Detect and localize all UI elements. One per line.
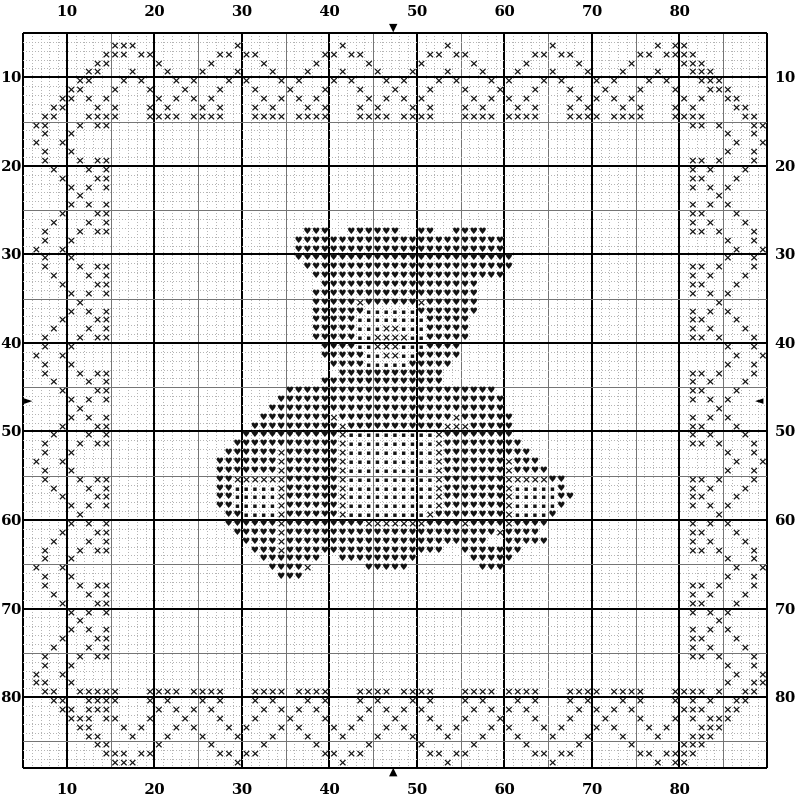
gridline-horizontal bbox=[23, 175, 767, 176]
stitch-cross: × bbox=[268, 697, 277, 706]
stitch-cross: × bbox=[321, 104, 330, 113]
stitch-cross: × bbox=[688, 635, 697, 644]
stitch-cross: × bbox=[67, 502, 76, 511]
stitch-heart: ♥ bbox=[478, 263, 487, 272]
stitch-dot: ▪ bbox=[364, 316, 373, 325]
stitch-cross: × bbox=[487, 113, 496, 122]
gridline-horizontal bbox=[23, 68, 767, 69]
stitch-heart: ♥ bbox=[443, 520, 452, 529]
stitch-heart: ♥ bbox=[294, 485, 303, 494]
stitch-heart: ♥ bbox=[496, 564, 505, 573]
stitch-cross: × bbox=[749, 148, 758, 157]
stitch-cross: × bbox=[741, 697, 750, 706]
stitch-heart: ♥ bbox=[504, 449, 513, 458]
stitch-heart: ♥ bbox=[513, 538, 522, 547]
stitch-heart: ♥ bbox=[434, 387, 443, 396]
stitch-heart: ♥ bbox=[303, 254, 312, 263]
stitch-cross: × bbox=[723, 467, 732, 476]
stitch-dot: ▪ bbox=[364, 440, 373, 449]
stitch-cross: × bbox=[128, 42, 137, 51]
stitch-heart: ♥ bbox=[391, 246, 400, 255]
stitch-cross: × bbox=[688, 210, 697, 219]
stitch-cross: × bbox=[461, 715, 470, 724]
gridline-horizontal bbox=[23, 60, 767, 61]
stitch-cross: × bbox=[741, 166, 750, 175]
gridline-horizontal bbox=[23, 325, 767, 326]
stitch-heart: ♥ bbox=[478, 493, 487, 502]
stitch-cross: × bbox=[408, 697, 417, 706]
stitch-cross: × bbox=[41, 237, 50, 246]
stitch-heart: ♥ bbox=[434, 352, 443, 361]
stitch-heart: ♥ bbox=[478, 440, 487, 449]
stitch-cross: × bbox=[242, 476, 251, 485]
axis-tick-label-bottom: 50 bbox=[407, 780, 427, 798]
stitch-cross: × bbox=[102, 653, 111, 662]
stitch-cross: × bbox=[662, 51, 671, 60]
stitch-heart: ♥ bbox=[286, 467, 295, 476]
stitch-heart: ♥ bbox=[417, 414, 426, 423]
stitch-heart: ♥ bbox=[373, 228, 382, 237]
stitch-heart: ♥ bbox=[434, 538, 443, 547]
stitch-cross: × bbox=[434, 77, 443, 86]
stitch-heart: ♥ bbox=[329, 299, 338, 308]
gridline-horizontal bbox=[23, 253, 767, 255]
stitch-heart: ♥ bbox=[469, 272, 478, 281]
stitch-heart: ♥ bbox=[347, 254, 356, 263]
stitch-heart: ♥ bbox=[329, 387, 338, 396]
stitch-cross: × bbox=[189, 724, 198, 733]
stitch-cross: × bbox=[242, 750, 251, 759]
stitch-cross: × bbox=[671, 759, 680, 768]
stitch-heart: ♥ bbox=[539, 538, 548, 547]
stitch-dot: ▪ bbox=[242, 485, 251, 494]
stitch-heart: ♥ bbox=[259, 529, 268, 538]
stitch-cross: × bbox=[163, 697, 172, 706]
stitch-heart: ♥ bbox=[303, 405, 312, 414]
stitch-cross: × bbox=[434, 724, 443, 733]
stitch-heart: ♥ bbox=[216, 476, 225, 485]
stitch-heart: ♥ bbox=[426, 423, 435, 432]
stitch-heart: ♥ bbox=[329, 396, 338, 405]
stitch-heart: ♥ bbox=[408, 405, 417, 414]
stitch-heart: ♥ bbox=[478, 511, 487, 520]
stitch-dot: ▪ bbox=[399, 502, 408, 511]
stitch-dot: ▪ bbox=[531, 511, 540, 520]
stitch-heart: ♥ bbox=[382, 370, 391, 379]
stitch-cross: × bbox=[688, 697, 697, 706]
stitch-dot: ▪ bbox=[408, 431, 417, 440]
gridline-vertical bbox=[137, 33, 138, 768]
stitch-heart: ♥ bbox=[408, 423, 417, 432]
stitch-cross: × bbox=[93, 157, 102, 166]
stitch-dot: ▪ bbox=[373, 485, 382, 494]
stitch-dot: ▪ bbox=[391, 440, 400, 449]
stitch-cross: × bbox=[732, 635, 741, 644]
stitch-heart: ♥ bbox=[356, 272, 365, 281]
stitch-heart: ♥ bbox=[321, 352, 330, 361]
stitch-heart: ♥ bbox=[469, 237, 478, 246]
stitch-heart: ♥ bbox=[478, 449, 487, 458]
stitch-cross: × bbox=[338, 759, 347, 768]
stitch-heart: ♥ bbox=[513, 440, 522, 449]
stitch-heart: ♥ bbox=[487, 502, 496, 511]
stitch-dot: ▪ bbox=[373, 431, 382, 440]
stitch-heart: ♥ bbox=[487, 237, 496, 246]
gridline-horizontal bbox=[23, 219, 767, 220]
stitch-cross: × bbox=[496, 715, 505, 724]
stitch-cross: × bbox=[93, 387, 102, 396]
stitch-cross: × bbox=[146, 715, 155, 724]
stitch-cross: × bbox=[347, 51, 356, 60]
stitch-heart: ♥ bbox=[443, 485, 452, 494]
stitch-heart: ♥ bbox=[268, 547, 277, 556]
stitch-heart: ♥ bbox=[303, 511, 312, 520]
stitch-heart: ♥ bbox=[356, 555, 365, 564]
stitch-cross: × bbox=[697, 733, 706, 742]
stitch-cross: × bbox=[723, 361, 732, 370]
gridline-horizontal bbox=[23, 688, 767, 689]
stitch-cross: × bbox=[102, 113, 111, 122]
stitch-heart: ♥ bbox=[443, 343, 452, 352]
stitch-cross: × bbox=[111, 86, 120, 95]
stitch-cross: × bbox=[741, 378, 750, 387]
stitch-cross: × bbox=[93, 688, 102, 697]
stitch-heart: ♥ bbox=[277, 555, 286, 564]
stitch-cross: × bbox=[452, 414, 461, 423]
stitch-dot: ▪ bbox=[364, 485, 373, 494]
stitch-heart: ♥ bbox=[373, 396, 382, 405]
stitch-cross: × bbox=[706, 431, 715, 440]
stitch-heart: ♥ bbox=[364, 423, 373, 432]
stitch-cross: × bbox=[732, 697, 741, 706]
stitch-heart: ♥ bbox=[382, 290, 391, 299]
stitch-heart: ♥ bbox=[364, 370, 373, 379]
stitch-heart: ♥ bbox=[277, 431, 286, 440]
stitch-heart: ♥ bbox=[321, 493, 330, 502]
stitch-cross: × bbox=[67, 467, 76, 476]
stitch-heart: ♥ bbox=[487, 263, 496, 272]
stitch-cross: × bbox=[679, 51, 688, 60]
stitch-cross: × bbox=[697, 263, 706, 272]
stitch-heart: ♥ bbox=[504, 423, 513, 432]
stitch-cross: × bbox=[714, 157, 723, 166]
stitch-heart: ♥ bbox=[478, 502, 487, 511]
stitch-cross: × bbox=[242, 724, 251, 733]
stitch-cross: × bbox=[478, 733, 487, 742]
stitch-heart: ♥ bbox=[242, 529, 251, 538]
stitch-heart: ♥ bbox=[373, 414, 382, 423]
stitch-cross: × bbox=[714, 547, 723, 556]
stitch-cross: × bbox=[277, 688, 286, 697]
stitch-heart: ♥ bbox=[496, 493, 505, 502]
stitch-cross: × bbox=[408, 68, 417, 77]
gridline-vertical bbox=[662, 33, 663, 768]
stitch-cross: × bbox=[741, 325, 750, 334]
stitch-heart: ♥ bbox=[539, 467, 548, 476]
stitch-heart: ♥ bbox=[294, 493, 303, 502]
stitch-cross: × bbox=[102, 538, 111, 547]
stitch-cross: × bbox=[391, 352, 400, 361]
stitch-heart: ♥ bbox=[294, 467, 303, 476]
stitch-cross: × bbox=[76, 547, 85, 556]
stitch-heart: ♥ bbox=[303, 520, 312, 529]
stitch-cross: × bbox=[469, 706, 478, 715]
stitch-heart: ♥ bbox=[399, 263, 408, 272]
gridline-horizontal bbox=[23, 724, 767, 725]
stitch-dot: ▪ bbox=[391, 502, 400, 511]
stitch-dot: ▪ bbox=[347, 476, 356, 485]
stitch-cross: × bbox=[732, 564, 741, 573]
stitch-cross: × bbox=[382, 77, 391, 86]
stitch-cross: × bbox=[329, 77, 338, 86]
stitch-heart: ♥ bbox=[364, 564, 373, 573]
stitch-heart: ♥ bbox=[259, 414, 268, 423]
stitch-cross: × bbox=[373, 113, 382, 122]
stitch-dot: ▪ bbox=[364, 493, 373, 502]
stitch-heart: ♥ bbox=[452, 485, 461, 494]
stitch-cross: × bbox=[119, 51, 128, 60]
stitch-heart: ♥ bbox=[259, 467, 268, 476]
stitch-heart: ♥ bbox=[373, 387, 382, 396]
stitch-dot: ▪ bbox=[408, 449, 417, 458]
stitch-heart: ♥ bbox=[312, 263, 321, 272]
stitch-cross: × bbox=[749, 334, 758, 343]
stitch-cross: × bbox=[417, 60, 426, 69]
stitch-heart: ♥ bbox=[364, 414, 373, 423]
stitch-cross: × bbox=[697, 741, 706, 750]
stitch-cross: × bbox=[277, 467, 286, 476]
stitch-dot: ▪ bbox=[417, 467, 426, 476]
stitch-heart: ♥ bbox=[443, 334, 452, 343]
stitch-heart: ♥ bbox=[478, 529, 487, 538]
stitch-heart: ♥ bbox=[469, 246, 478, 255]
stitch-dot: ▪ bbox=[391, 485, 400, 494]
stitch-cross: × bbox=[58, 104, 67, 113]
stitch-cross: × bbox=[154, 706, 163, 715]
stitch-cross: × bbox=[128, 733, 137, 742]
stitch-cross: × bbox=[356, 113, 365, 122]
stitch-dot: ▪ bbox=[408, 476, 417, 485]
stitch-cross: × bbox=[671, 42, 680, 51]
stitch-heart: ♥ bbox=[417, 361, 426, 370]
stitch-cross: × bbox=[504, 485, 513, 494]
stitch-cross: × bbox=[688, 316, 697, 325]
stitch-heart: ♥ bbox=[382, 405, 391, 414]
stitch-cross: × bbox=[49, 688, 58, 697]
stitch-heart: ♥ bbox=[452, 493, 461, 502]
stitch-cross: × bbox=[636, 750, 645, 759]
stitch-heart: ♥ bbox=[469, 449, 478, 458]
stitch-dot: ▪ bbox=[233, 493, 242, 502]
stitch-cross: × bbox=[758, 352, 767, 361]
stitch-heart: ♥ bbox=[391, 423, 400, 432]
stitch-cross: × bbox=[679, 113, 688, 122]
stitch-heart: ♥ bbox=[417, 370, 426, 379]
stitch-cross: × bbox=[609, 724, 618, 733]
stitch-cross: × bbox=[382, 325, 391, 334]
stitch-heart: ♥ bbox=[312, 405, 321, 414]
stitch-heart: ♥ bbox=[321, 502, 330, 511]
stitch-heart: ♥ bbox=[338, 254, 347, 263]
stitch-heart: ♥ bbox=[382, 263, 391, 272]
stitch-dot: ▪ bbox=[364, 308, 373, 317]
stitch-cross: × bbox=[189, 706, 198, 715]
stitch-cross: × bbox=[504, 502, 513, 511]
stitch-dot: ▪ bbox=[382, 308, 391, 317]
stitch-cross: × bbox=[347, 724, 356, 733]
stitch-dot: ▪ bbox=[391, 431, 400, 440]
stitch-heart: ♥ bbox=[321, 440, 330, 449]
stitch-heart: ♥ bbox=[478, 396, 487, 405]
stitch-cross: × bbox=[732, 281, 741, 290]
stitch-heart: ♥ bbox=[557, 485, 566, 494]
stitch-cross: × bbox=[688, 219, 697, 228]
gridline-vertical bbox=[618, 33, 619, 768]
stitch-heart: ♥ bbox=[338, 316, 347, 325]
stitch-heart: ♥ bbox=[478, 387, 487, 396]
stitch-cross: × bbox=[504, 113, 513, 122]
gridline-vertical bbox=[347, 33, 348, 768]
stitch-heart: ♥ bbox=[434, 511, 443, 520]
stitch-heart: ♥ bbox=[496, 440, 505, 449]
gridline-horizontal bbox=[23, 662, 767, 663]
stitch-heart: ♥ bbox=[434, 334, 443, 343]
stitch-cross: × bbox=[67, 679, 76, 688]
stitch-heart: ♥ bbox=[268, 449, 277, 458]
stitch-heart: ♥ bbox=[216, 467, 225, 476]
stitch-cross: × bbox=[688, 476, 697, 485]
stitch-dot: ▪ bbox=[408, 502, 417, 511]
stitch-cross: × bbox=[732, 95, 741, 104]
stitch-heart: ♥ bbox=[399, 299, 408, 308]
stitch-heart: ♥ bbox=[347, 290, 356, 299]
stitch-dot: ▪ bbox=[356, 440, 365, 449]
stitch-cross: × bbox=[49, 166, 58, 175]
gridline-horizontal bbox=[23, 378, 767, 379]
stitch-heart: ♥ bbox=[469, 423, 478, 432]
stitch-dot: ▪ bbox=[417, 511, 426, 520]
stitch-heart: ♥ bbox=[312, 555, 321, 564]
stitch-cross: × bbox=[373, 688, 382, 697]
stitch-cross: × bbox=[434, 485, 443, 494]
stitch-cross: × bbox=[688, 706, 697, 715]
stitch-heart: ♥ bbox=[461, 396, 470, 405]
stitch-heart: ♥ bbox=[469, 431, 478, 440]
stitch-heart: ♥ bbox=[461, 440, 470, 449]
stitch-heart: ♥ bbox=[426, 308, 435, 317]
gridline-horizontal bbox=[23, 485, 767, 486]
stitch-cross: × bbox=[146, 697, 155, 706]
stitch-heart: ♥ bbox=[268, 467, 277, 476]
stitch-cross: × bbox=[723, 679, 732, 688]
stitch-cross: × bbox=[653, 759, 662, 768]
stitch-cross: × bbox=[732, 139, 741, 148]
stitch-cross: × bbox=[749, 679, 758, 688]
stitch-cross: × bbox=[154, 688, 163, 697]
stitch-dot: ▪ bbox=[347, 493, 356, 502]
stitch-heart: ♥ bbox=[531, 458, 540, 467]
stitch-cross: × bbox=[224, 51, 233, 60]
stitch-heart: ♥ bbox=[426, 529, 435, 538]
stitch-cross: × bbox=[688, 741, 697, 750]
stitch-heart: ♥ bbox=[461, 325, 470, 334]
gridline-horizontal bbox=[23, 635, 767, 636]
gridline-vertical bbox=[294, 33, 295, 768]
stitch-cross: × bbox=[487, 688, 496, 697]
stitch-heart: ♥ bbox=[391, 272, 400, 281]
stitch-heart: ♥ bbox=[399, 564, 408, 573]
stitch-heart: ♥ bbox=[408, 547, 417, 556]
stitch-heart: ♥ bbox=[356, 246, 365, 255]
stitch-cross: × bbox=[338, 449, 347, 458]
stitch-cross: × bbox=[706, 290, 715, 299]
stitch-heart: ♥ bbox=[417, 308, 426, 317]
stitch-cross: × bbox=[417, 299, 426, 308]
gridline-vertical bbox=[399, 33, 400, 768]
stitch-heart: ♥ bbox=[303, 263, 312, 272]
stitch-cross: × bbox=[688, 688, 697, 697]
axis-tick-label-top: 30 bbox=[232, 2, 252, 20]
stitch-dot: ▪ bbox=[408, 325, 417, 334]
stitch-heart: ♥ bbox=[312, 272, 321, 281]
stitch-cross: × bbox=[41, 334, 50, 343]
stitch-heart: ♥ bbox=[312, 502, 321, 511]
stitch-heart: ♥ bbox=[408, 290, 417, 299]
stitch-cross: × bbox=[714, 724, 723, 733]
stitch-dot: ▪ bbox=[382, 316, 391, 325]
stitch-heart: ♥ bbox=[329, 290, 338, 299]
stitch-heart: ♥ bbox=[496, 502, 505, 511]
stitch-cross: × bbox=[741, 485, 750, 494]
stitch-heart: ♥ bbox=[443, 511, 452, 520]
stitch-dot: ▪ bbox=[408, 485, 417, 494]
stitch-cross: × bbox=[671, 688, 680, 697]
stitch-dot: ▪ bbox=[382, 361, 391, 370]
stitch-dot: ▪ bbox=[347, 449, 356, 458]
stitch-cross: × bbox=[146, 104, 155, 113]
stitch-heart: ♥ bbox=[452, 343, 461, 352]
stitch-cross: × bbox=[58, 387, 67, 396]
stitch-cross: × bbox=[146, 688, 155, 697]
stitch-heart: ♥ bbox=[312, 520, 321, 529]
stitch-cross: × bbox=[697, 316, 706, 325]
stitch-heart: ♥ bbox=[312, 299, 321, 308]
stitch-heart: ♥ bbox=[504, 414, 513, 423]
stitch-cross: × bbox=[426, 51, 435, 60]
stitch-heart: ♥ bbox=[312, 237, 321, 246]
gridline-vertical bbox=[478, 33, 479, 768]
stitch-cross: × bbox=[49, 272, 58, 281]
stitch-cross: × bbox=[749, 113, 758, 122]
stitch-heart: ♥ bbox=[539, 520, 548, 529]
stitch-dot: ▪ bbox=[382, 485, 391, 494]
gridline-horizontal bbox=[23, 696, 767, 698]
stitch-heart: ♥ bbox=[277, 564, 286, 573]
stitch-cross: × bbox=[58, 529, 67, 538]
stitch-cross: × bbox=[697, 529, 706, 538]
stitch-cross: × bbox=[749, 370, 758, 379]
gridline-horizontal bbox=[23, 113, 767, 114]
stitch-cross: × bbox=[609, 113, 618, 122]
stitch-heart: ♥ bbox=[408, 254, 417, 263]
stitch-heart: ♥ bbox=[452, 458, 461, 467]
stitch-heart: ♥ bbox=[321, 396, 330, 405]
gridline-vertical bbox=[653, 33, 654, 768]
stitch-cross: × bbox=[84, 414, 93, 423]
stitch-cross: × bbox=[382, 113, 391, 122]
stitch-heart: ♥ bbox=[522, 538, 531, 547]
stitch-cross: × bbox=[697, 228, 706, 237]
